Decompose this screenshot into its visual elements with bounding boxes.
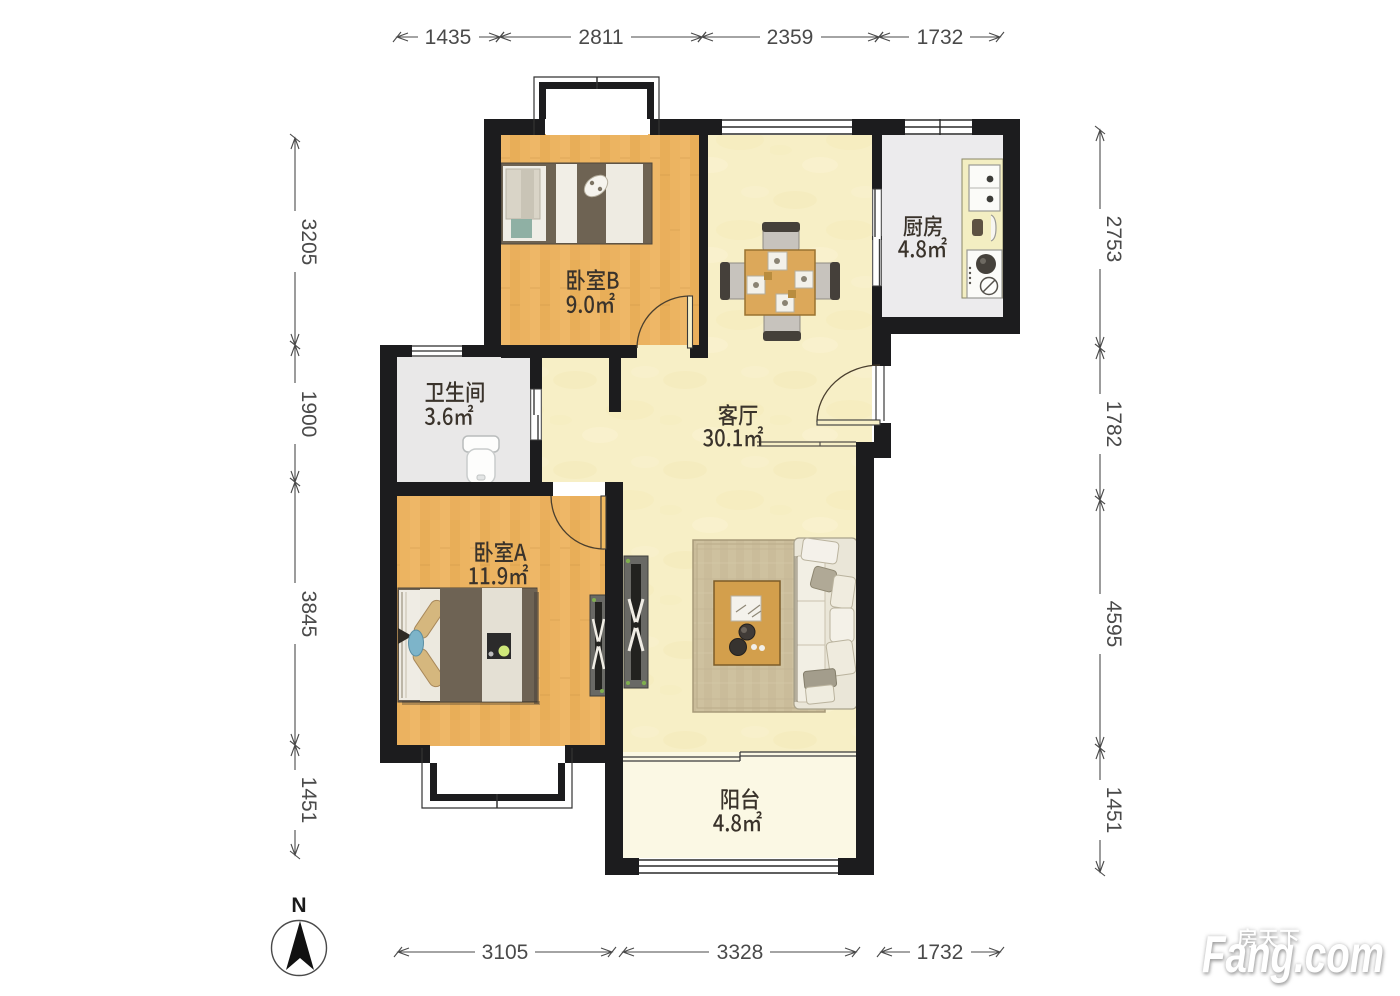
svg-text:1435: 1435 (425, 26, 472, 49)
svg-text:2359: 2359 (767, 26, 814, 49)
svg-text:3845: 3845 (297, 591, 320, 638)
svg-text:1732: 1732 (917, 941, 964, 964)
svg-text:1451: 1451 (297, 777, 320, 824)
svg-text:2811: 2811 (578, 26, 623, 49)
svg-text:3205: 3205 (297, 219, 320, 266)
svg-text:2753: 2753 (1102, 216, 1125, 263)
svg-text:3105: 3105 (482, 941, 529, 964)
svg-text:Fang.com: Fang.com (1202, 926, 1384, 984)
svg-text:4595: 4595 (1102, 601, 1125, 648)
svg-text:1732: 1732 (917, 26, 964, 49)
svg-text:N: N (291, 894, 306, 917)
svg-text:1900: 1900 (297, 391, 320, 438)
svg-text:1782: 1782 (1102, 401, 1125, 448)
svg-text:3328: 3328 (717, 941, 764, 964)
svg-text:1451: 1451 (1102, 787, 1125, 834)
